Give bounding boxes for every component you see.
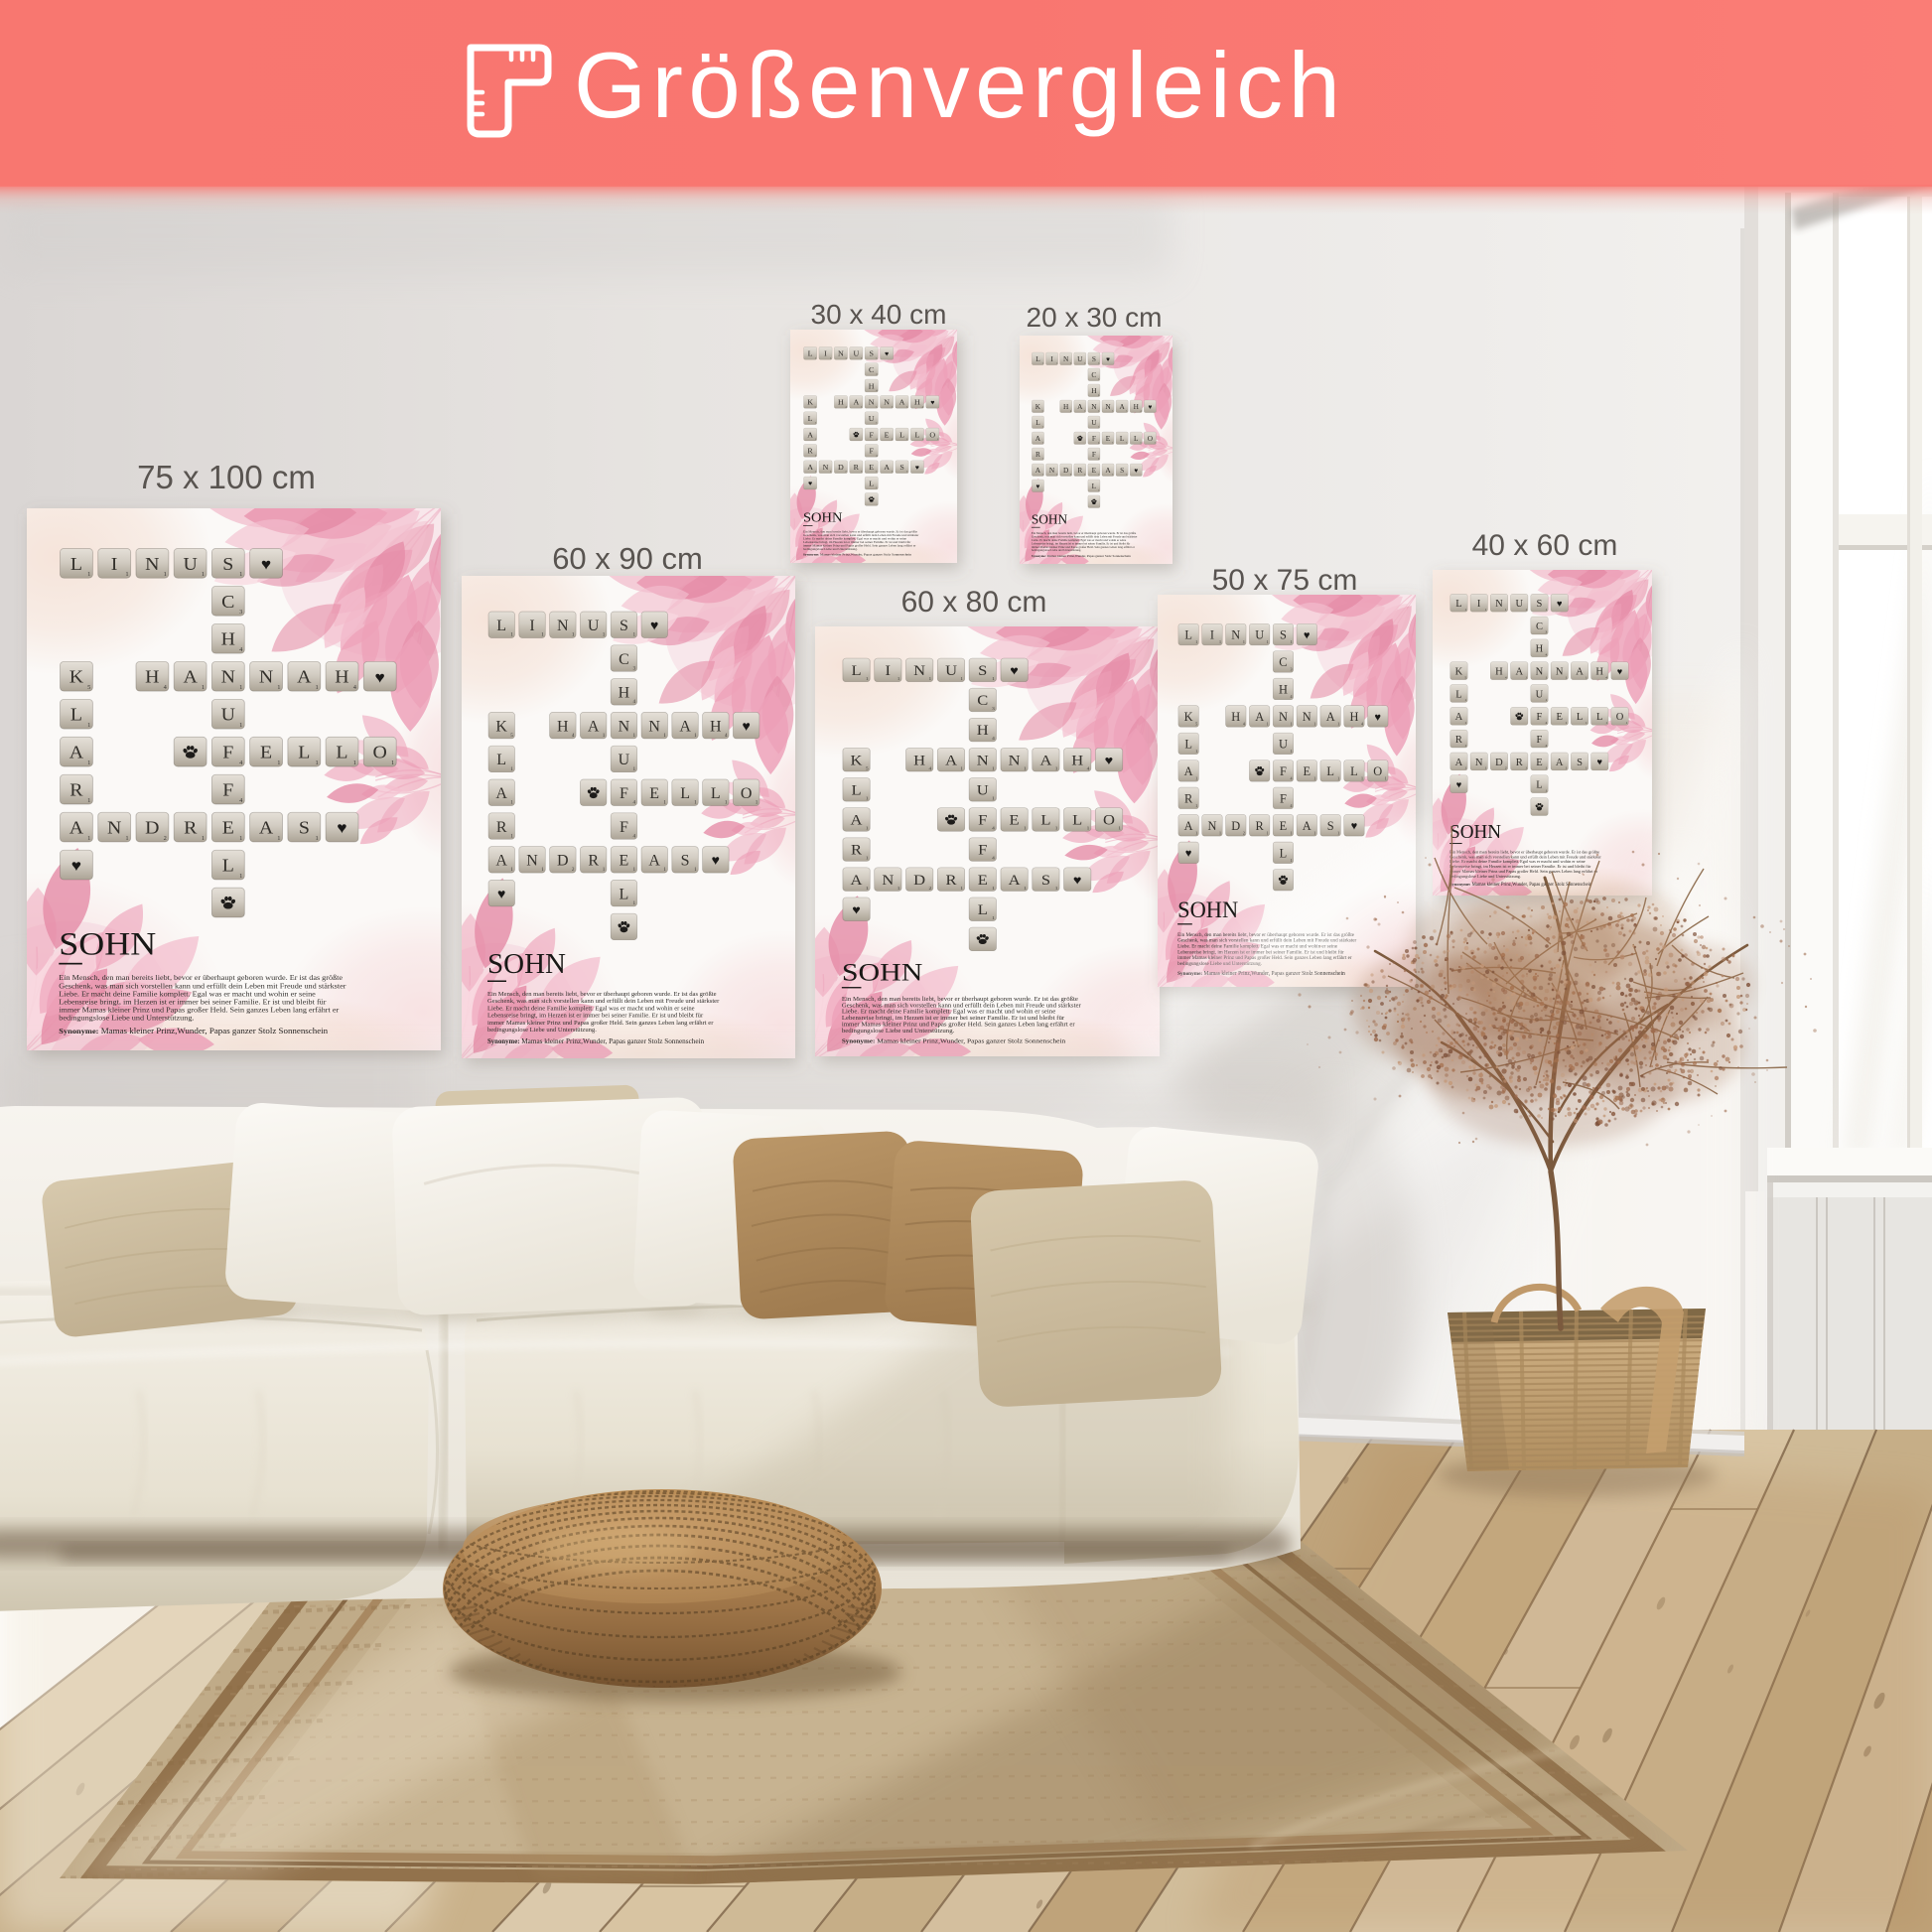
svg-text:30 x 40 cm: 30 x 40 cm (811, 299, 947, 330)
svg-text:40 x 60 cm: 40 x 60 cm (1472, 529, 1618, 562)
svg-text:75 x 100 cm: 75 x 100 cm (137, 459, 316, 495)
svg-text:60 x 90 cm: 60 x 90 cm (552, 541, 703, 576)
svg-text:50 x 75 cm: 50 x 75 cm (1212, 564, 1358, 597)
svg-text:60 x 80 cm: 60 x 80 cm (901, 586, 1047, 619)
svg-text:20 x 30 cm: 20 x 30 cm (1027, 302, 1163, 333)
svg-text:Größenvergleich: Größenvergleich (574, 33, 1345, 137)
